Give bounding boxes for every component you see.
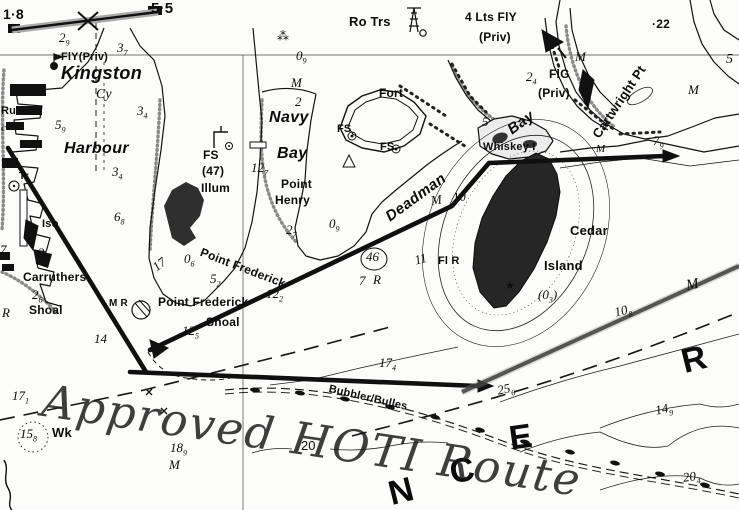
- station-fs47-line3: Illum: [201, 182, 230, 194]
- depth-20-4: 204: [682, 469, 701, 484]
- cable-bubbler-bulles: Bubbler/Bulles: [328, 384, 409, 413]
- depth-6-8: 68: [114, 210, 125, 223]
- depth-5-right: 5: [726, 53, 733, 67]
- depth-0-6: 06: [184, 252, 195, 265]
- place-cartwright-pt: Cartwright Pt: [590, 63, 648, 140]
- depth-5-bay: 5: [482, 115, 489, 128]
- place-pf-shoal-line1: Point Frederick: [158, 296, 248, 308]
- light-iso: Iso: [42, 219, 59, 230]
- place-cedar-island: Island: [544, 259, 583, 272]
- place-point-henry-line1: Point: [281, 178, 312, 190]
- light-flg-priv: (Priv): [538, 87, 570, 99]
- station-fs-b: FS: [380, 142, 394, 153]
- depth-m-whiskey: M: [596, 144, 605, 155]
- place-fort: Fort: [379, 87, 403, 99]
- depth-3-4a: 34: [137, 104, 148, 117]
- depth-2-6: 26: [32, 288, 43, 301]
- depth-17-4: 174: [379, 356, 396, 369]
- depth-2-navy: 2: [295, 95, 302, 108]
- station-fs47-line2: (47): [202, 165, 224, 177]
- place-carruthers-shoal: Shoal: [29, 304, 63, 316]
- place-pf-shoal-line2: Shoal: [206, 316, 240, 328]
- depth-m-navy: M: [291, 76, 302, 89]
- depth-11: 11: [413, 251, 428, 267]
- place-navy: Navy: [269, 110, 309, 126]
- place-cedar: Cedar: [570, 224, 608, 237]
- nautical-chart-scan: 1·85·52937FlY(Priv)KingstonCy34Ruc59Harb…: [0, 0, 739, 510]
- depth-17-shore: 17: [150, 255, 168, 273]
- depth-46-7: 7: [359, 274, 366, 287]
- light-4lts-line2: (Priv): [479, 31, 511, 43]
- place-whiskey-i: Whiskey I: [483, 142, 536, 153]
- depth-46: 46: [366, 250, 379, 263]
- depth-2-7: 27: [286, 223, 297, 236]
- label-c: c: [1, 123, 6, 134]
- station-fs-a: FS: [337, 124, 351, 135]
- depth-7-9: 79: [653, 134, 664, 147]
- river-letter-r: R: [678, 340, 710, 379]
- depth-3-4b: 34: [112, 165, 123, 178]
- clearance-left: 1·8: [3, 7, 24, 21]
- place-point-henry-line2: Henry: [275, 194, 310, 206]
- depth-3-5: 35: [38, 246, 49, 259]
- depth-0-3: (03): [538, 288, 557, 301]
- depth-r-left: R: [2, 306, 10, 319]
- depth-3-7: 37: [117, 41, 128, 54]
- depth-5-2: 52: [210, 272, 221, 285]
- depth-m-18: M: [169, 458, 180, 471]
- depth-0-9a: 09: [296, 49, 307, 62]
- label-cy: Cy: [96, 88, 112, 102]
- wreck-depth-15-8: 158: [20, 427, 37, 440]
- depth-m10-10: 10: [452, 189, 467, 204]
- station-fs47-line1: FS: [203, 149, 219, 161]
- buoy-label-mr: M R: [109, 299, 128, 309]
- clearance-right: 5·5: [151, 1, 173, 16]
- depth-m10-m: M: [430, 192, 443, 206]
- depth-12-5: 125: [182, 324, 199, 337]
- depth-14-9: 149: [654, 400, 673, 416]
- depth-17-1: 171: [12, 389, 29, 402]
- depth-10-8: 108: [613, 302, 633, 319]
- light-star: ★: [505, 280, 515, 291]
- spot-height-22: ·22: [652, 18, 670, 30]
- depth-12-7: 127: [251, 161, 268, 174]
- place-kingston: Kingston: [61, 64, 142, 82]
- station-ro-trs: Ro Trs: [349, 15, 391, 28]
- place-harbour: Harbour: [64, 141, 129, 157]
- light-flg: FlG: [549, 68, 570, 80]
- place-navy-bay: Bay: [277, 146, 308, 162]
- label-tr: Tr: [19, 172, 29, 182]
- place-deadman-bay: Bay: [505, 108, 537, 137]
- depth-25-6: 256: [496, 380, 515, 396]
- label-ru: Ru: [1, 106, 16, 117]
- depth-0-9b: 09: [329, 217, 340, 230]
- depth-m-cedar-se: M: [685, 277, 700, 294]
- depth-14: 14: [94, 332, 107, 345]
- rapids-symbol: ⁂: [277, 30, 289, 42]
- light-fly-priv: FlY(Priv): [61, 52, 108, 63]
- depth-2-4: 24: [526, 70, 537, 83]
- depth-m-cartwright: M: [575, 50, 586, 63]
- depth-m-right-top: M: [688, 83, 699, 96]
- depth-7-left: 7: [0, 243, 7, 256]
- light-4lts-line1: 4 Lts FlY: [465, 11, 517, 23]
- place-carruthers: Carruthers: [23, 271, 86, 283]
- light-fl-r: Fl R: [438, 256, 460, 267]
- depth-5-9: 59: [55, 118, 66, 131]
- depth-2-9: 29: [59, 31, 70, 44]
- depth-46-r: R: [373, 273, 381, 286]
